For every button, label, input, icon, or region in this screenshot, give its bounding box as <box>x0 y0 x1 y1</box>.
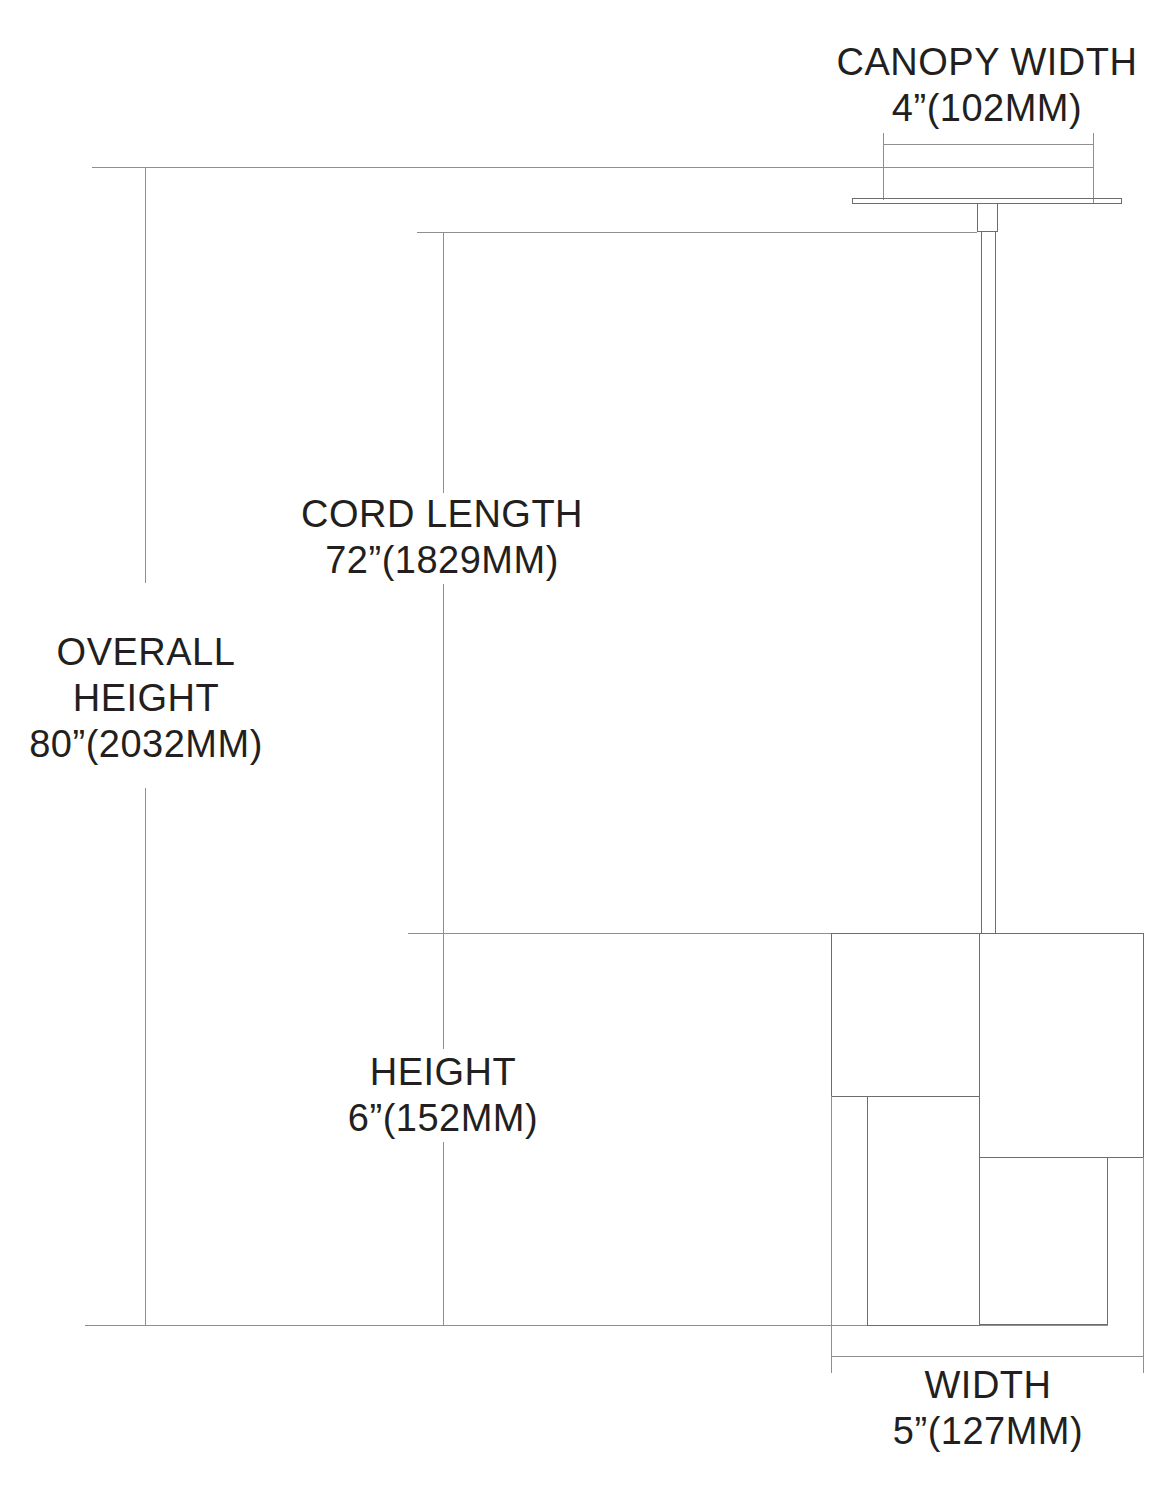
canopy-width-value: 4”(102MM) <box>837 85 1138 131</box>
height-title: HEIGHT <box>348 1049 538 1095</box>
canopy-width-title: CANOPY WIDTH <box>837 39 1138 85</box>
overall-height-value: 80”(2032MM) <box>29 721 263 767</box>
height-value: 6”(152MM) <box>348 1095 538 1141</box>
overall-height-dim-line-upper <box>145 167 146 583</box>
shade-box-bottom-right <box>979 1157 1108 1325</box>
width-label: WIDTH 5”(127MM) <box>893 1362 1083 1454</box>
cord-line-right <box>995 232 996 933</box>
width-dim-line <box>831 1356 1144 1357</box>
cord-top-reference-line <box>417 232 977 233</box>
shade-box-top-left <box>831 933 980 1097</box>
shade-box-bottom-left <box>867 1096 980 1326</box>
canopy-width-dim-line <box>883 144 1094 145</box>
height-dim-line-upper <box>443 933 444 1049</box>
cord-length-label: CORD LENGTH 72”(1829MM) <box>301 491 583 583</box>
cord-line-left <box>981 232 982 933</box>
width-extension-line-right <box>1143 1157 1144 1373</box>
cord-length-value: 72”(1829MM) <box>301 537 583 583</box>
ceiling-reference-line <box>92 167 1093 168</box>
cord-length-title: CORD LENGTH <box>301 491 583 537</box>
shade-box-top-right <box>979 933 1144 1158</box>
canopy-junction-box <box>977 203 998 232</box>
cord-length-dim-line-lower <box>443 584 444 933</box>
overall-height-title-line1: OVERALL <box>29 629 263 675</box>
width-extension-line-left <box>831 1096 832 1373</box>
canopy-width-label: CANOPY WIDTH 4”(102MM) <box>837 39 1138 131</box>
width-title: WIDTH <box>893 1362 1083 1408</box>
dimension-diagram: CANOPY WIDTH 4”(102MM) CORD LENGTH 72”(1… <box>0 0 1175 1500</box>
height-dim-line-lower <box>443 1142 444 1326</box>
height-label: HEIGHT 6”(152MM) <box>348 1049 538 1141</box>
overall-height-dim-line-lower <box>145 788 146 1326</box>
width-value: 5”(127MM) <box>893 1408 1083 1454</box>
overall-height-label: OVERALL HEIGHT 80”(2032MM) <box>29 629 263 767</box>
overall-height-title-line2: HEIGHT <box>29 675 263 721</box>
cord-length-dim-line-upper <box>443 232 444 493</box>
